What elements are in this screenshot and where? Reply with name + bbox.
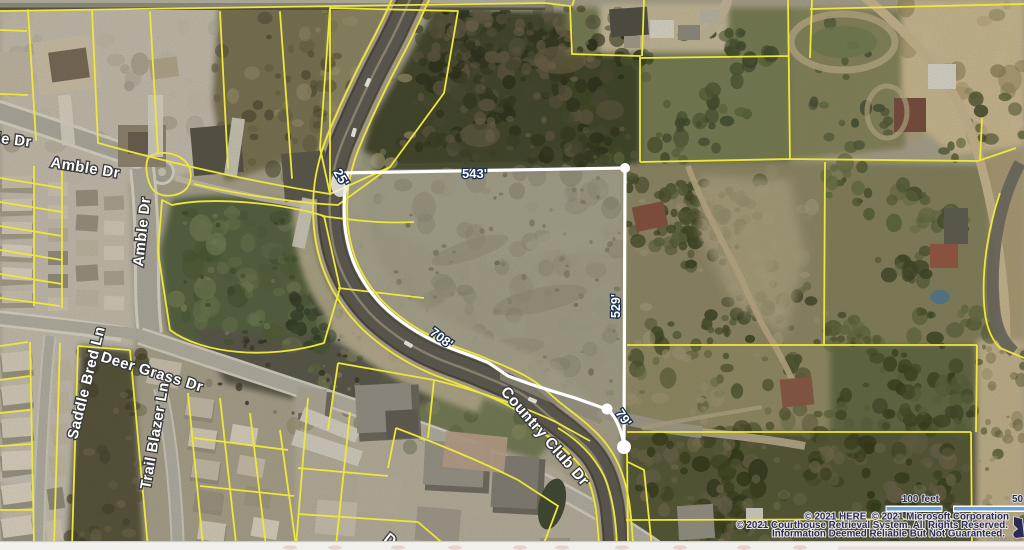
svg-text:le Dr: le Dr (0, 130, 33, 151)
svg-text:529': 529' (609, 294, 623, 318)
svg-text:Information Deemed Reliable Bu: Information Deemed Reliable But Not Guar… (772, 529, 1005, 540)
svg-text:50: 50 (1012, 494, 1024, 505)
svg-text:543': 543' (462, 166, 487, 181)
svg-text:100 feet: 100 feet (902, 494, 940, 505)
